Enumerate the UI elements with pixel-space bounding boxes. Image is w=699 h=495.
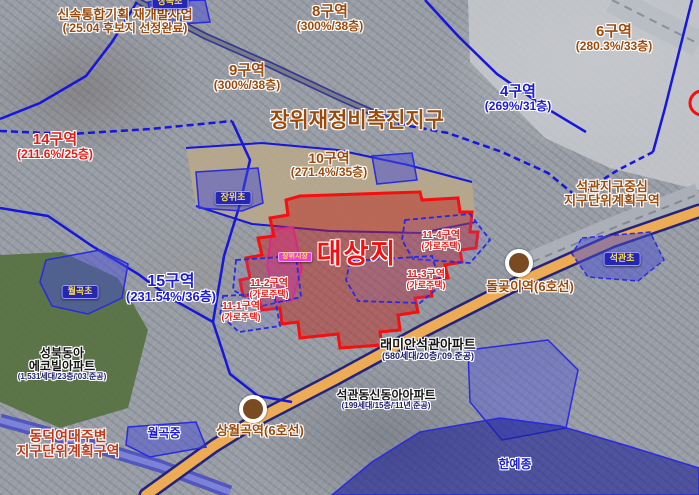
zone-6-label: 6구역(280.3%/33층) bbox=[576, 24, 652, 53]
zone-11-1-label: 11-1구역(가로주택) bbox=[221, 302, 260, 323]
district-title-line-0: 장위재정비촉진지구 bbox=[270, 110, 444, 133]
seokgwan-district-center-label: 석관지구중심지구단위계획구역 bbox=[564, 180, 660, 208]
apt-raemian-seokgwan-label: 래미안석관아파트(580세대/20층/'09.준공) bbox=[380, 338, 476, 362]
station-sangwolgok-label-line-0: 상월곡역(6호선) bbox=[216, 424, 304, 438]
dongduk-district-label-line-1: 지구단위계획구역 bbox=[16, 444, 119, 459]
school-wolgok-elem-box: 월곡초 bbox=[62, 285, 99, 299]
wolgok-middle-label: 월곡중 bbox=[147, 427, 180, 440]
zone-11-3-label-line-1: (가로주택) bbox=[406, 281, 445, 291]
apt-raemian-seokgwan-label-line-1: (580세대/20층/'09.준공) bbox=[380, 352, 476, 362]
seokgwan-district-center-label-line-1: 지구단위계획구역 bbox=[564, 194, 660, 208]
zone-9-label: 9구역(300%/38층) bbox=[214, 63, 280, 92]
wolgok-middle-label-line-0: 월곡중 bbox=[147, 427, 180, 440]
apt-raemian-seokgwan-label-line-0: 래미안석관아파트 bbox=[380, 338, 476, 352]
zone-14-label-line-1: (211.6%/25층) bbox=[17, 148, 93, 161]
zone-10-label: 10구역(271.4%/35층) bbox=[291, 151, 367, 179]
zone-14-label: 14구역(211.6%/25층) bbox=[17, 132, 93, 161]
zone-11-2-label-line-1: (가로주택) bbox=[249, 290, 288, 300]
school-seokgwan-box: 석관초 bbox=[604, 252, 641, 266]
seokgwan-district-center-label-line-0: 석관지구중심 bbox=[564, 180, 660, 194]
dongduk-district-label-line-0: 동덕여대주변 bbox=[16, 429, 119, 444]
zone-11-2-label: 11-2구역(가로주택) bbox=[249, 279, 288, 300]
school-wolgok-elem-box-line-0: 월곡초 bbox=[68, 287, 93, 297]
zone-11-3-label: 11-3구역(가로주택) bbox=[406, 270, 445, 291]
target-site-label: 대상지 bbox=[317, 240, 398, 269]
zone-8-label: 8구역(300%/38층) bbox=[297, 4, 363, 33]
zone-15-label: 15구역(231.54%/36층) bbox=[126, 273, 216, 304]
market-jangwi-box: 장위시장 bbox=[278, 252, 312, 262]
zone-15-label-line-0: 15구역 bbox=[126, 273, 216, 290]
apt-seongbuk-dongah-label: 성북동아에코빌아파트(1,531세대/23층/'03.준공) bbox=[18, 347, 107, 382]
target-site-label-line-0: 대상지 bbox=[317, 240, 398, 269]
dongduk-district-label: 동덕여대주변지구단위계획구역 bbox=[16, 429, 119, 459]
hanyejong-label-line-0: 한예종 bbox=[498, 458, 531, 471]
apt-seokgwan-dongah-label-line-0: 석관동신동아아파트 bbox=[336, 389, 435, 402]
hanyejong-label: 한예종 bbox=[498, 458, 531, 471]
station-dolgoji-marker bbox=[505, 249, 533, 277]
fast-track-note: 신속통합기획 재개발사업('25.04 후보지 선정완료) bbox=[57, 8, 192, 35]
station-dolgoji-label-line-0: 돌곶이역(6호선) bbox=[486, 280, 574, 294]
school-janggok-box: 장곡초 bbox=[152, 0, 189, 9]
school-jangwi-box: 장위초 bbox=[215, 191, 252, 205]
district-title: 장위재정비촉진지구 bbox=[270, 110, 444, 133]
zone-11-1-label-line-1: (가로주택) bbox=[221, 313, 260, 323]
zone-4-label-line-1: (269%/31층) bbox=[485, 100, 551, 113]
fast-track-note-line-1: ('25.04 후보지 선정완료) bbox=[57, 22, 192, 35]
zone-4-label-line-0: 4구역 bbox=[485, 84, 551, 100]
station-dolgoji-label: 돌곶이역(6호선) bbox=[486, 280, 574, 294]
zone-10-label-line-0: 10구역 bbox=[291, 151, 367, 166]
school-seokgwan-box-line-0: 석관초 bbox=[610, 254, 635, 264]
satellite-map: 신속통합기획 재개발사업('25.04 후보지 선정완료)8구역(300%/38… bbox=[0, 0, 699, 495]
school-janggok-box-line-0: 장곡초 bbox=[158, 0, 183, 7]
zone-8-label-line-0: 8구역 bbox=[297, 4, 363, 20]
zone-4-label: 4구역(269%/31층) bbox=[485, 84, 551, 113]
zone-14-label-line-0: 14구역 bbox=[17, 132, 93, 148]
apt-seongbuk-dongah-label-line-0: 성북동아 bbox=[18, 347, 107, 360]
blue-patch-east-of-zone10 bbox=[372, 153, 417, 184]
zone-9-label-line-0: 9구역 bbox=[214, 63, 280, 79]
zone-11-4-label: 11-4구역(가로주택) bbox=[421, 231, 460, 252]
school-jangwi-box-line-0: 장위초 bbox=[221, 193, 246, 203]
zone-11-4-label-line-1: (가로주택) bbox=[421, 242, 460, 252]
zone-6-label-line-0: 6구역 bbox=[576, 24, 652, 40]
apt-seongbuk-dongah-label-line-2: (1,531세대/23층/'03.준공) bbox=[18, 373, 107, 382]
apt-seokgwan-dongah-label-line-1: (199세대/15층/'11년 준공) bbox=[336, 402, 435, 411]
zone-8-label-line-1: (300%/38층) bbox=[297, 20, 363, 33]
zone-10-label-line-1: (271.4%/35층) bbox=[291, 166, 367, 179]
apt-seongbuk-dongah-label-line-1: 에코빌아파트 bbox=[18, 360, 107, 373]
zone-15-label-line-1: (231.54%/36층) bbox=[126, 290, 216, 304]
zone-9-label-line-1: (300%/38층) bbox=[214, 79, 280, 92]
station-sangwolgok-marker bbox=[239, 395, 267, 423]
station-sangwolgok-label: 상월곡역(6호선) bbox=[216, 424, 304, 438]
apt-seokgwan-dongah-label: 석관동신동아아파트(199세대/15층/'11년 준공) bbox=[336, 389, 435, 411]
fast-track-note-line-0: 신속통합기획 재개발사업 bbox=[57, 8, 192, 22]
zone-6-label-line-1: (280.3%/33층) bbox=[576, 40, 652, 53]
market-jangwi-box-line-0: 장위시장 bbox=[282, 253, 308, 261]
